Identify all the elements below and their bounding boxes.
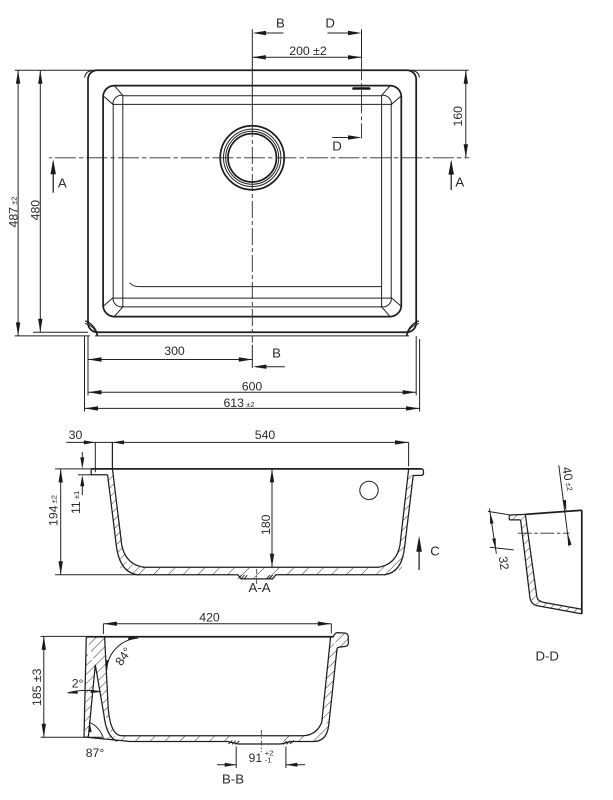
svg-text:300: 300	[164, 344, 185, 358]
svg-text:160: 160	[451, 106, 465, 127]
svg-text:B-B: B-B	[222, 772, 244, 787]
svg-text:B: B	[272, 346, 281, 361]
svg-text:87°: 87°	[86, 746, 105, 760]
svg-text:200 ±2: 200 ±2	[289, 44, 327, 58]
svg-text:180: 180	[259, 514, 273, 535]
svg-text:91: 91	[249, 751, 263, 765]
svg-text:C: C	[430, 543, 440, 558]
svg-text:32: 32	[496, 555, 512, 571]
svg-text:480: 480	[29, 200, 43, 221]
svg-text:11 ±1: 11 ±1	[69, 491, 83, 514]
svg-text:540: 540	[255, 428, 276, 442]
svg-text:A-A: A-A	[249, 580, 271, 595]
svg-text:A: A	[455, 175, 464, 190]
svg-text:487 ±2: 487 ±2	[7, 196, 21, 227]
svg-text:30: 30	[69, 428, 83, 442]
svg-text:A: A	[58, 176, 67, 191]
svg-text:600: 600	[242, 379, 263, 393]
svg-text:194 ±2: 194 ±2	[47, 495, 61, 526]
svg-text:185 ±3: 185 ±3	[30, 668, 44, 706]
svg-text:D-D: D-D	[535, 649, 558, 664]
svg-text:420: 420	[199, 611, 220, 625]
svg-text:B: B	[276, 16, 285, 31]
svg-text:D: D	[332, 139, 342, 154]
svg-text:D: D	[325, 16, 335, 31]
svg-text:2°: 2°	[72, 677, 84, 691]
svg-text:-1: -1	[265, 756, 272, 765]
